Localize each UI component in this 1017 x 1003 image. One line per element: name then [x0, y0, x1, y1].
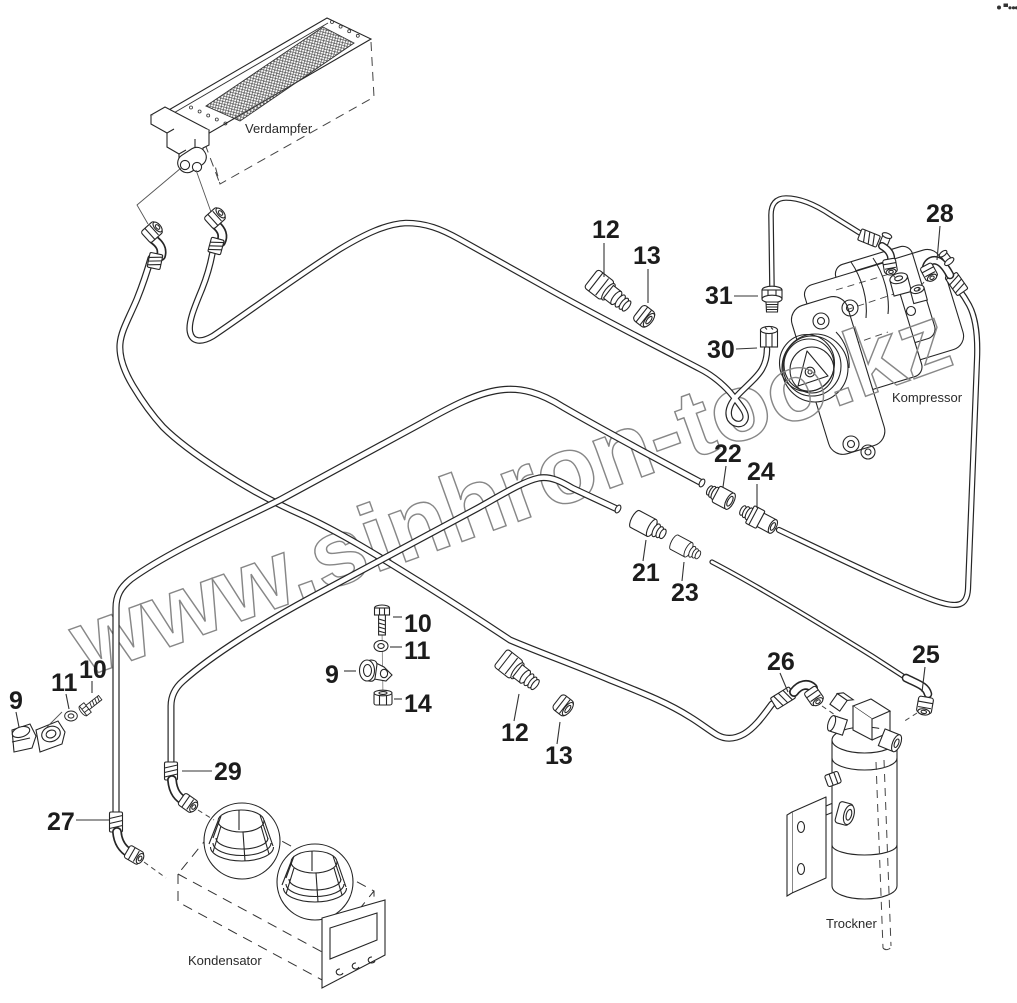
svg-text:29: 29: [214, 758, 242, 786]
svg-text:30: 30: [707, 336, 735, 364]
svg-text:24: 24: [747, 458, 775, 486]
svg-text:23: 23: [671, 579, 699, 607]
svg-text:11: 11: [404, 637, 431, 665]
svg-text:10: 10: [79, 656, 107, 684]
svg-text:27: 27: [47, 808, 75, 836]
svg-text:Trockner: Trockner: [826, 916, 877, 931]
svg-text:26: 26: [767, 648, 795, 676]
svg-text:22: 22: [714, 440, 742, 468]
svg-text:25: 25: [912, 641, 940, 669]
svg-text:9: 9: [9, 687, 23, 715]
svg-text:12: 12: [501, 719, 529, 747]
svg-text:13: 13: [545, 742, 573, 770]
svg-text:9: 9: [325, 661, 339, 689]
svg-text:14: 14: [404, 690, 432, 718]
svg-text:21: 21: [632, 559, 660, 587]
svg-text:28: 28: [926, 200, 954, 228]
svg-text:31: 31: [705, 282, 733, 310]
svg-text:13: 13: [633, 242, 661, 270]
svg-text:Kondensator: Kondensator: [188, 953, 262, 968]
svg-text:12: 12: [592, 216, 620, 244]
svg-text:10: 10: [404, 610, 432, 638]
svg-text:Verdampfer: Verdampfer: [245, 121, 313, 136]
svg-text:11: 11: [51, 669, 78, 697]
